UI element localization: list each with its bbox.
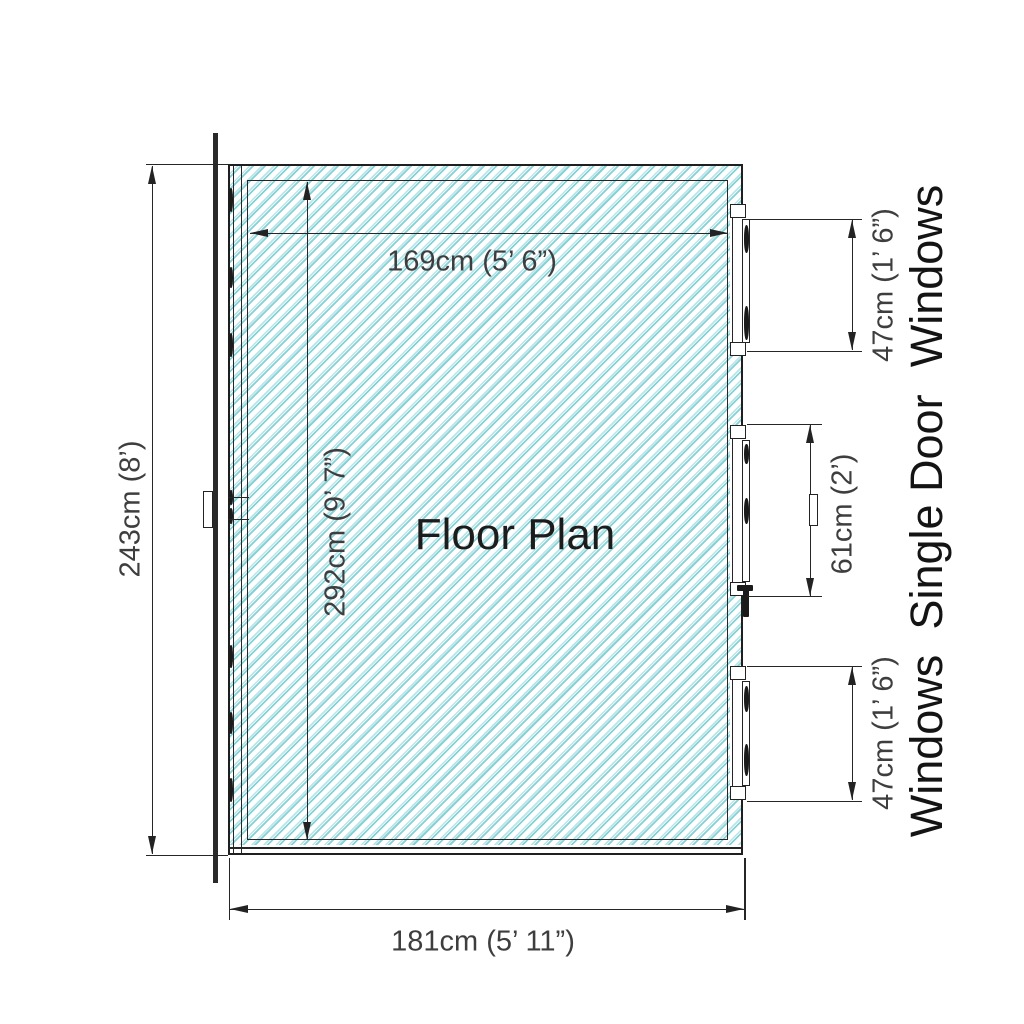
dim-label-door: 61cm (2’): [827, 454, 860, 575]
door-frame-tab: [730, 425, 746, 439]
left-door-hinge-mark: [229, 188, 233, 212]
door-opening-inner-line: [732, 425, 733, 596]
dim-line: [152, 166, 154, 854]
dim-label-window-top: 47cm (1’ 6”): [868, 208, 901, 362]
left-latch-tick: [228, 519, 249, 520]
left-door-latch-mark: [229, 508, 233, 524]
dim-label-inner-width: 169cm (5’ 6”): [387, 246, 557, 279]
left-door-hinge-mark: [229, 712, 233, 734]
floor-plan-drawing: 243cm (8’) 169cm (5’ 6”) 292cm (9’ 7”) 1…: [0, 0, 1024, 1024]
door-handle: [809, 494, 818, 526]
window-top-frame-tab: [730, 342, 746, 356]
dim-label-outer-width: 181cm (5’ 11”): [391, 926, 575, 959]
side-label-windows-top: Windows: [901, 185, 953, 368]
dim-extension-line: [146, 164, 228, 166]
window-opening-top-inner-line: [732, 204, 733, 356]
arrow-down-icon: [303, 822, 311, 840]
window-bottom-sash-mark: [744, 686, 749, 712]
window-top-sash-mark: [744, 306, 749, 340]
dim-line: [250, 233, 728, 235]
arrow-down-icon: [148, 836, 156, 854]
door-latch-mark: [744, 498, 749, 524]
arrow-up-icon: [848, 667, 856, 685]
dim-extension-line: [747, 666, 862, 668]
dim-line: [229, 909, 744, 911]
window-bottom-frame-tab: [730, 786, 746, 800]
door-threshold-mark: [743, 589, 749, 617]
left-door-hinge-mark: [229, 267, 233, 288]
arrow-up-icon: [148, 166, 156, 184]
arrow-down-icon: [848, 782, 856, 800]
window-top-frame-tab: [730, 204, 746, 218]
window-top-sash-mark: [744, 225, 749, 253]
door-hinge-mark: [744, 444, 749, 464]
arrow-up-icon: [848, 220, 856, 238]
arrow-left-icon: [230, 905, 248, 913]
arrow-right-icon: [726, 905, 744, 913]
left-door-panel-line: [213, 133, 218, 883]
bottom-rail-line: [230, 847, 741, 849]
arrow-down-icon: [848, 332, 856, 350]
arrow-down-icon: [806, 578, 814, 596]
page-title: Floor Plan: [415, 510, 616, 560]
dim-extension-line: [146, 855, 228, 857]
window-bottom-sash-mark: [744, 744, 749, 776]
left-latch-tick: [228, 497, 249, 498]
arrow-up-icon: [303, 182, 311, 200]
dim-line: [852, 667, 854, 800]
dim-extension-line: [747, 219, 862, 221]
arrow-right-icon: [710, 229, 728, 237]
arrow-left-icon: [250, 229, 268, 237]
left-door-hinge-mark: [229, 333, 233, 357]
left-door-hinge-mark: [229, 778, 233, 802]
dim-label-inner-height: 292cm (9’ 7”): [320, 447, 353, 617]
left-wall-line-1: [233, 166, 234, 853]
side-label-windows-bottom: Windows: [901, 655, 953, 838]
window-bottom-frame-tab: [730, 666, 746, 680]
dim-label-outer-height: 243cm (8’): [115, 441, 148, 578]
dim-extension-line: [747, 351, 862, 353]
dim-extension-line: [744, 858, 746, 920]
dim-label-window-bottom: 47cm (1’ 6”): [868, 656, 901, 810]
side-label-single-door: Single Door: [901, 394, 953, 629]
left-door-hinge-mark: [229, 645, 233, 668]
dim-line: [307, 182, 309, 840]
dim-line: [852, 220, 854, 350]
left-door-handle: [203, 491, 213, 528]
window-opening-bottom-inner-line: [732, 666, 733, 800]
arrow-up-icon: [806, 425, 814, 443]
dim-extension-line: [747, 801, 862, 803]
left-wall-line-2: [241, 166, 242, 853]
